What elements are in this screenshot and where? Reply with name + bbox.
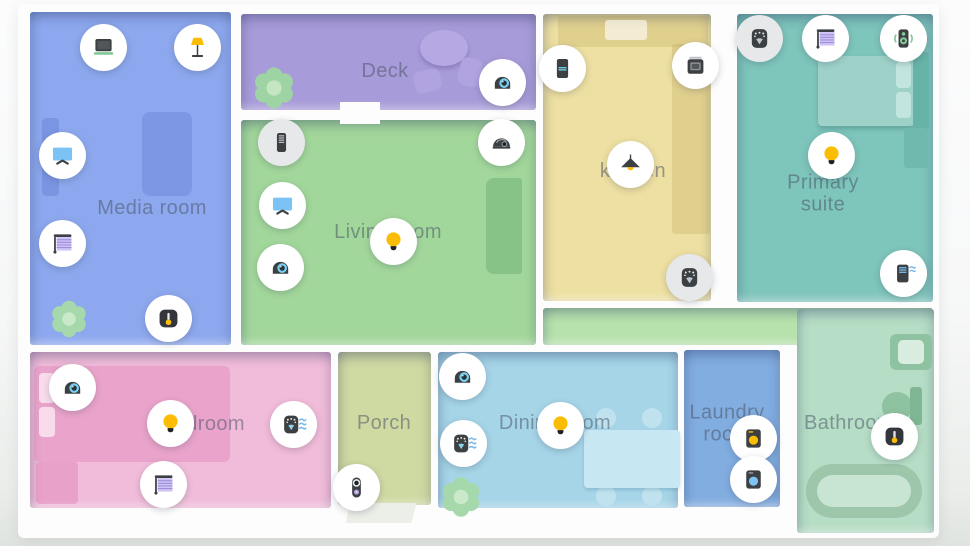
tv-icon[interactable] xyxy=(259,182,306,229)
floor-plan-canvas: Media roomDeckLiving roomkitchenPrimary … xyxy=(0,0,970,546)
tv-icon[interactable] xyxy=(39,132,86,179)
blinds-icon[interactable] xyxy=(802,15,849,62)
oven-icon[interactable] xyxy=(672,42,719,89)
fridge-icon[interactable] xyxy=(539,45,586,92)
doorbell-icon[interactable] xyxy=(333,464,380,511)
camera-icon[interactable] xyxy=(439,353,486,400)
dome-camera-icon[interactable] xyxy=(478,119,525,166)
camera-icon[interactable] xyxy=(257,244,304,291)
dryer-icon[interactable] xyxy=(730,415,777,462)
washer-icon[interactable] xyxy=(730,456,777,503)
bulb-icon[interactable] xyxy=(537,402,584,449)
smoke-detector-waves-icon[interactable] xyxy=(270,401,317,448)
bulb-icon[interactable] xyxy=(147,400,194,447)
thermostat-icon[interactable] xyxy=(871,413,918,460)
smoke-detector-waves-icon[interactable] xyxy=(440,420,487,467)
speaker-playing-icon[interactable] xyxy=(880,15,927,62)
camera-icon[interactable] xyxy=(49,364,96,411)
blinds-icon[interactable] xyxy=(140,461,187,508)
devices-layer xyxy=(0,0,970,546)
floor-lamp-icon[interactable] xyxy=(174,24,221,71)
smoke-detector-icon[interactable] xyxy=(666,254,713,301)
pendant-light-icon[interactable] xyxy=(607,141,654,188)
bulb-icon[interactable] xyxy=(370,218,417,265)
laptop-icon[interactable] xyxy=(80,24,127,71)
air-purifier-icon[interactable] xyxy=(880,250,927,297)
smoke-detector-icon[interactable] xyxy=(736,15,783,62)
thermostat-icon[interactable] xyxy=(145,295,192,342)
speaker-tower-icon[interactable] xyxy=(258,119,305,166)
blinds-icon[interactable] xyxy=(39,220,86,267)
camera-icon[interactable] xyxy=(479,59,526,106)
bulb-icon[interactable] xyxy=(808,132,855,179)
